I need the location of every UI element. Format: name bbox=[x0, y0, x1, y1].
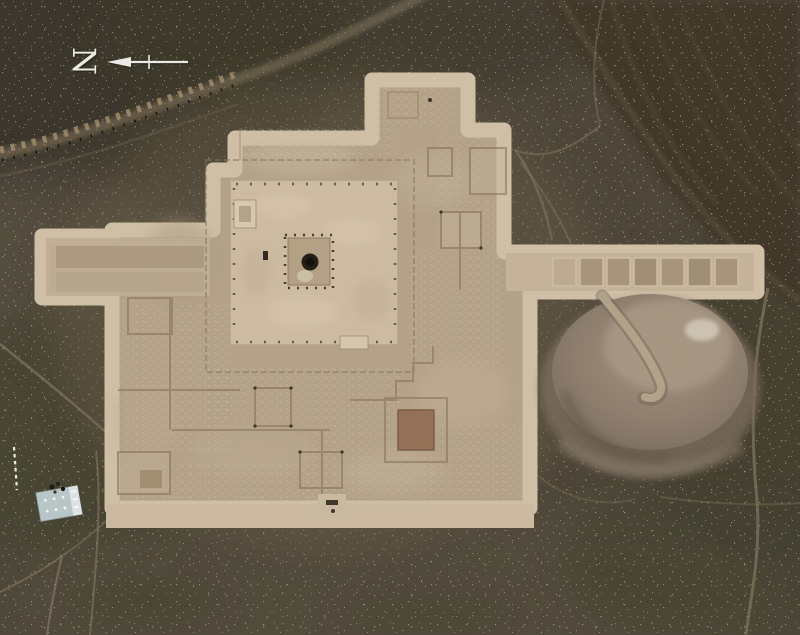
small-sunken-room bbox=[140, 470, 162, 488]
platform-dark-feature bbox=[263, 251, 268, 260]
central-pit bbox=[285, 235, 333, 288]
platform-stairs bbox=[234, 200, 256, 228]
aerial-photo: N N bbox=[0, 0, 800, 635]
east-trench-corridor bbox=[506, 253, 754, 291]
north-label: N bbox=[65, 47, 103, 75]
trench-cells bbox=[553, 258, 738, 286]
platform-south-steps bbox=[340, 336, 368, 349]
mound-light-patch bbox=[685, 319, 719, 341]
pit-light-patch bbox=[297, 270, 313, 282]
pit-hole-center bbox=[306, 258, 315, 267]
bottom-gate bbox=[318, 494, 346, 518]
central-platform bbox=[230, 180, 398, 349]
west-ramp-corridor bbox=[46, 238, 210, 296]
red-floor-room bbox=[398, 410, 434, 450]
